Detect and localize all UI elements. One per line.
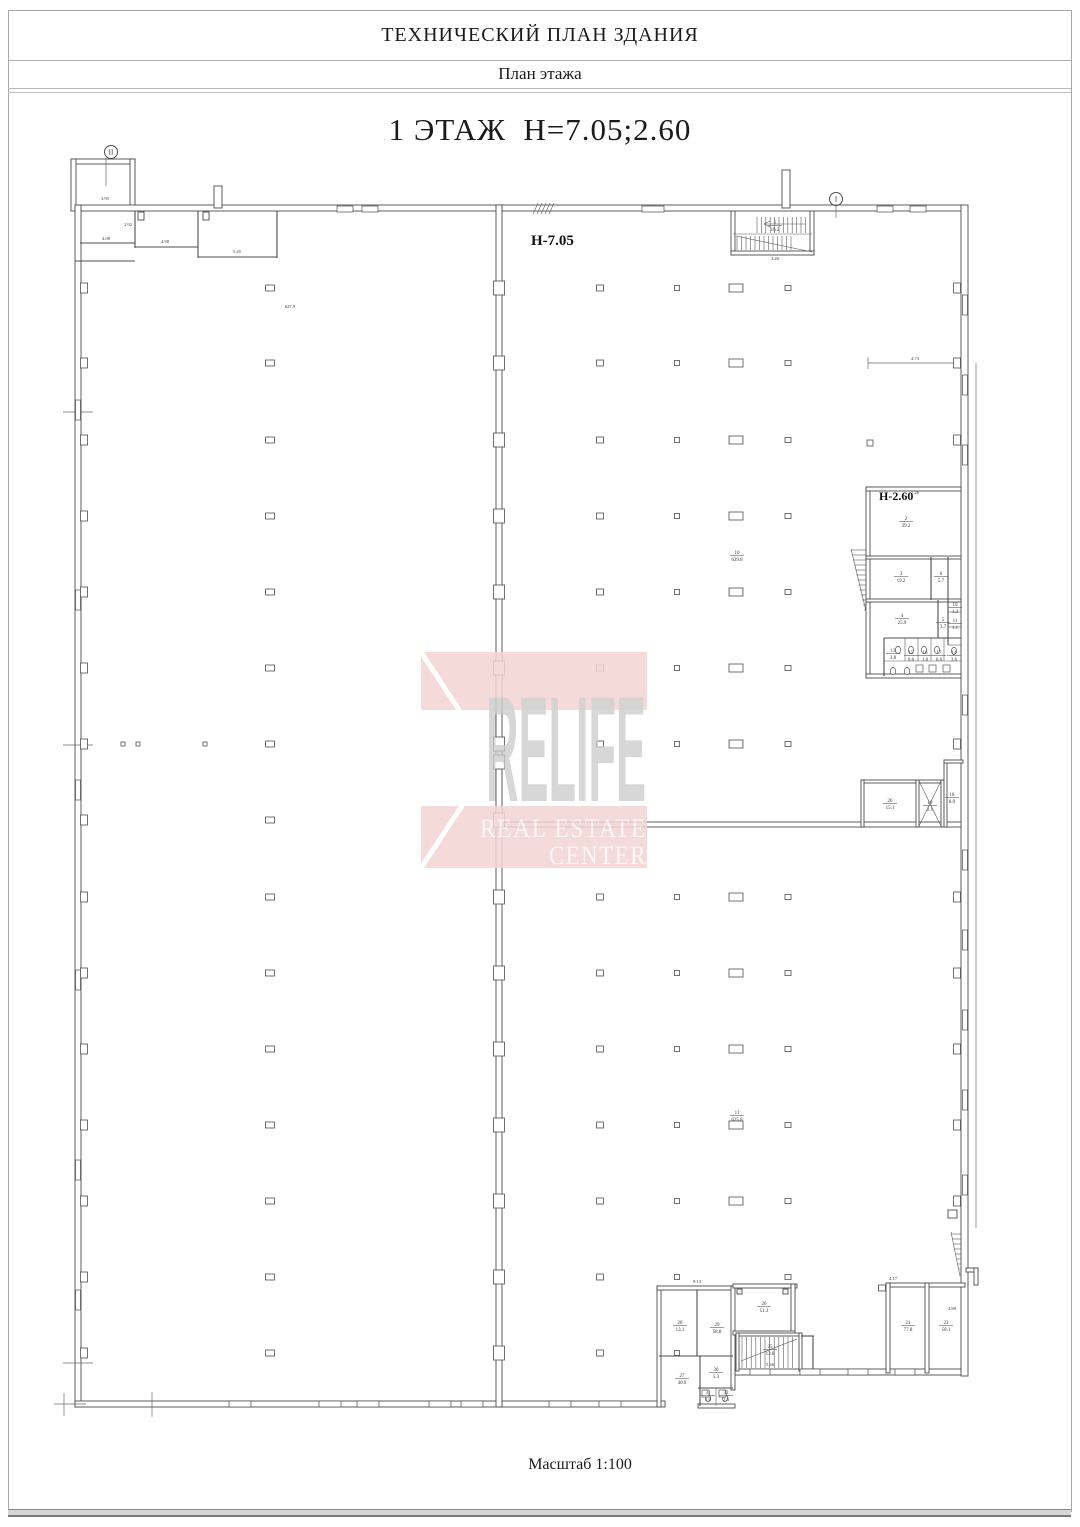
svg-text:23: 23 <box>944 1321 950 1326</box>
svg-text:11: 11 <box>953 619 958 624</box>
column-marker <box>597 1350 604 1356</box>
dimension-label: 4.73 <box>911 356 920 361</box>
dimension-label: 4.17 <box>889 1276 898 1281</box>
column-marker <box>81 1348 88 1358</box>
dimension-label: 4.08 <box>102 236 111 241</box>
column-marker <box>494 281 505 295</box>
column-marker <box>954 739 961 749</box>
column-marker <box>675 1351 680 1356</box>
svg-text:20: 20 <box>888 799 894 804</box>
column-marker <box>494 509 505 523</box>
technical-plan-page: { "header": { "title": "ТЕХНИЧЕСКИЙ ПЛАН… <box>0 0 1080 1527</box>
dimension-label: 2.92 <box>124 222 133 227</box>
column-marker <box>266 1198 275 1204</box>
column-marker <box>597 360 604 366</box>
svg-text:0.6: 0.6 <box>908 658 915 663</box>
column-marker <box>954 358 961 368</box>
svg-text:19.2: 19.2 <box>897 579 906 584</box>
window-marker <box>963 295 968 315</box>
column-marker <box>266 285 275 291</box>
column-marker <box>785 286 791 291</box>
room-label: 2651.3 <box>757 1302 771 1314</box>
column-marker <box>81 1196 88 1206</box>
window-marker <box>229 1401 251 1407</box>
room-label: 2015.1 <box>883 799 897 811</box>
column-marker <box>597 894 604 900</box>
column-marker <box>729 284 743 292</box>
column-marker <box>729 740 743 748</box>
room-label: 11625.8 <box>730 1111 744 1123</box>
svg-text:15.1: 15.1 <box>886 806 895 811</box>
dimension-label: 2.89 <box>948 1306 957 1311</box>
window-marker <box>963 1090 968 1110</box>
svg-text:28: 28 <box>678 1321 684 1326</box>
column-marker <box>81 511 88 521</box>
column-marker <box>494 1118 505 1132</box>
room-label: 2358.1 <box>939 1321 953 1333</box>
dimension-label: 4.90 <box>161 239 170 244</box>
column-marker <box>597 1122 604 1128</box>
svg-text:11: 11 <box>735 1111 740 1116</box>
dimension-label: 627.9 <box>285 304 296 309</box>
column-marker <box>785 438 791 443</box>
column-marker <box>494 585 505 599</box>
window-marker <box>76 590 81 610</box>
sink-fixture <box>929 665 936 672</box>
svg-text:15: 15 <box>909 651 915 656</box>
column-marker <box>729 588 743 596</box>
room-label: 305.3 <box>709 1368 723 1380</box>
column-marker <box>494 356 505 370</box>
room-label: 2958.8 <box>710 1323 724 1335</box>
page-border-bottom <box>8 1509 1071 1517</box>
column-marker <box>675 1275 680 1280</box>
svg-text:32: 32 <box>724 1391 730 1396</box>
column-marker <box>266 1122 275 1128</box>
svg-text:3.6: 3.6 <box>951 658 958 663</box>
svg-text:19: 19 <box>928 801 934 806</box>
svg-text:58.8: 58.8 <box>713 1330 722 1335</box>
window-marker <box>963 695 968 715</box>
window-marker <box>357 1401 379 1407</box>
column-marker <box>597 1046 604 1052</box>
svg-text:639.8: 639.8 <box>731 558 743 563</box>
room-label: 192.1 <box>923 801 937 813</box>
svg-text:25: 25 <box>768 1345 774 1350</box>
dimension-label: 5.46 <box>766 1362 775 1367</box>
column-marker <box>675 742 680 747</box>
window-marker <box>76 780 81 800</box>
column-marker <box>675 438 680 443</box>
column-marker <box>785 742 791 747</box>
column-marker <box>266 817 275 823</box>
column-marker <box>266 1274 275 1280</box>
window-marker <box>963 445 968 465</box>
window-marker <box>963 1175 968 1195</box>
column-marker <box>954 1196 961 1206</box>
column-marker <box>954 283 961 293</box>
column-marker <box>494 890 505 904</box>
column-marker <box>729 436 743 444</box>
svg-text:29: 29 <box>715 1323 721 1328</box>
column-marker <box>729 969 743 977</box>
svg-text:30: 30 <box>714 1368 720 1373</box>
svg-text:27: 27 <box>680 1374 686 1379</box>
column-marker <box>266 360 275 366</box>
room-label: 2740.9 <box>675 1374 689 1386</box>
column-marker <box>785 514 791 519</box>
toilet-fixture <box>904 667 909 674</box>
column-marker <box>729 664 743 672</box>
column-marker <box>954 435 961 445</box>
svg-text:3.7: 3.7 <box>940 625 947 630</box>
column-marker <box>785 1199 791 1204</box>
axis-marker: I <box>830 193 843 206</box>
column-marker <box>785 590 791 595</box>
column-marker <box>81 663 88 673</box>
window-marker <box>429 1401 451 1407</box>
dimension-label: 9.13 <box>693 1279 702 1284</box>
column-marker <box>785 1275 791 1280</box>
relife-watermark: RELIFE REAL ESTATE CENTER <box>421 652 647 870</box>
column-marker <box>729 359 743 367</box>
column-marker <box>266 1350 275 1356</box>
column-marker <box>675 1047 680 1052</box>
column-marker <box>266 741 275 747</box>
svg-text:1.0: 1.0 <box>705 1398 712 1403</box>
column-marker <box>597 1274 604 1280</box>
svg-text:21: 21 <box>906 1321 912 1326</box>
column-marker <box>675 1123 680 1128</box>
column-marker <box>597 513 604 519</box>
svg-text:2.1: 2.1 <box>927 808 934 813</box>
column-marker <box>121 742 125 746</box>
svg-text:5: 5 <box>942 618 945 623</box>
column-marker <box>597 589 604 595</box>
svg-text:13.1: 13.1 <box>676 1328 685 1333</box>
column-marker <box>729 1197 743 1205</box>
svg-text:40.9: 40.9 <box>678 1381 687 1386</box>
column-marker <box>266 1046 275 1052</box>
column-marker <box>954 1120 961 1130</box>
column-marker <box>785 666 791 671</box>
column-marker <box>494 966 505 980</box>
column-marker <box>785 895 791 900</box>
column-marker <box>266 513 275 519</box>
svg-text:II: II <box>109 149 114 157</box>
room-label: 65.7 <box>934 572 948 584</box>
window-marker <box>910 206 926 212</box>
column-marker <box>675 971 680 976</box>
window-marker <box>319 1401 341 1407</box>
svg-text:8.0: 8.0 <box>949 800 956 805</box>
height-label: Н-7.05 <box>531 233 574 249</box>
window-marker <box>76 400 81 420</box>
room-label: 111.1 <box>948 619 962 631</box>
window-marker <box>337 206 353 212</box>
dimension-label: 4.40 <box>771 256 780 261</box>
window-marker <box>963 930 968 950</box>
svg-text:14: 14 <box>952 651 958 656</box>
room-label: 10639.8 <box>730 551 744 563</box>
column-marker <box>675 361 680 366</box>
window-marker <box>461 1401 483 1407</box>
toilet-fixture <box>895 646 900 653</box>
column-marker <box>81 587 88 597</box>
column-marker <box>494 1270 505 1284</box>
svg-text:10: 10 <box>953 603 959 608</box>
column-marker <box>597 437 604 443</box>
svg-text:13.8: 13.8 <box>766 1352 775 1357</box>
column-marker <box>954 968 961 978</box>
column-marker <box>81 1272 88 1282</box>
window-marker <box>800 1369 820 1375</box>
column-marker <box>81 435 88 445</box>
column-marker <box>729 512 743 520</box>
column-marker <box>675 514 680 519</box>
column-marker <box>729 1045 743 1053</box>
column-marker <box>266 894 275 900</box>
column-marker <box>81 283 88 293</box>
window-marker <box>963 1010 968 1030</box>
window-marker <box>599 1401 621 1407</box>
scale-note: Масштаб 1:100 <box>340 1456 820 1474</box>
window-marker <box>750 1369 770 1375</box>
column-marker <box>785 1047 791 1052</box>
svg-text:6: 6 <box>940 572 943 577</box>
column-marker <box>494 1042 505 1056</box>
room-label: 2813.1 <box>673 1321 687 1333</box>
column-marker <box>266 665 275 671</box>
svg-text:5.3: 5.3 <box>713 1375 720 1380</box>
column-marker <box>867 440 873 446</box>
height-label: Н-2.60 <box>879 489 913 503</box>
column-marker <box>597 970 604 976</box>
room-label: 425.9 <box>895 614 909 626</box>
room-label: 319.2 <box>894 572 908 584</box>
svg-text:51.3: 51.3 <box>760 1309 769 1314</box>
column-marker <box>81 892 88 902</box>
room-label: 239.2 <box>899 517 913 529</box>
window-marker <box>76 970 81 990</box>
svg-text:1: 1 <box>774 221 777 226</box>
column-marker <box>203 742 207 746</box>
window-marker <box>895 1369 915 1375</box>
window-marker <box>642 206 664 212</box>
svg-text:1.2: 1.2 <box>952 610 959 615</box>
svg-text:3.8: 3.8 <box>890 656 897 661</box>
column-marker <box>675 666 680 671</box>
svg-text:0.6: 0.6 <box>936 658 943 663</box>
column-marker <box>729 893 743 901</box>
svg-text:58.1: 58.1 <box>942 1328 951 1333</box>
svg-text:16: 16 <box>923 651 929 656</box>
column-marker <box>266 970 275 976</box>
column-marker <box>785 361 791 366</box>
svg-text:1.1: 1.1 <box>952 626 959 631</box>
column-marker <box>81 815 88 825</box>
svg-text:2.6: 2.6 <box>723 1398 730 1403</box>
column-marker <box>81 1044 88 1054</box>
column-marker <box>597 285 604 291</box>
column-marker <box>494 433 505 447</box>
window-marker <box>877 206 893 212</box>
column-marker <box>494 1346 505 1360</box>
svg-text:77.8: 77.8 <box>904 1328 913 1333</box>
svg-text:16.2: 16.2 <box>771 228 780 233</box>
column-marker <box>675 590 680 595</box>
svg-text:I: I <box>835 196 838 204</box>
column-marker <box>675 895 680 900</box>
room-label: 101.2 <box>948 603 962 615</box>
column-marker <box>675 1199 680 1204</box>
watermark-line2: CENTER <box>549 841 647 870</box>
sink-fixture <box>943 665 950 672</box>
column-marker <box>597 1198 604 1204</box>
svg-text:1.0: 1.0 <box>922 658 929 663</box>
window-marker <box>963 375 968 395</box>
column-marker <box>81 1120 88 1130</box>
axis-marker: II <box>105 146 118 159</box>
svg-text:4: 4 <box>901 614 904 619</box>
window-marker <box>362 206 378 212</box>
window-marker <box>963 850 968 870</box>
column-marker <box>954 892 961 902</box>
column-marker <box>81 968 88 978</box>
svg-text:39.2: 39.2 <box>902 524 911 529</box>
svg-text:2: 2 <box>905 517 908 522</box>
column-marker <box>785 971 791 976</box>
svg-text:31: 31 <box>706 1391 712 1396</box>
column-marker <box>785 1123 791 1128</box>
watermark-line1: REAL ESTATE <box>480 814 647 843</box>
room-label: 2177.8 <box>901 1321 915 1333</box>
dimension-label: 3.95 <box>101 196 110 201</box>
window-marker <box>549 1401 571 1407</box>
floor-plan-drawing: 10639.811625.8116.2239.2319.265.7425.953… <box>0 0 1080 1527</box>
dimension-label: 5.45 <box>233 249 242 254</box>
svg-text:17: 17 <box>937 651 943 656</box>
window-marker <box>76 1290 81 1310</box>
column-marker <box>81 358 88 368</box>
svg-text:13: 13 <box>891 649 897 654</box>
window-marker <box>848 1369 868 1375</box>
window-marker <box>76 1160 81 1180</box>
svg-text:10: 10 <box>735 551 741 556</box>
column-marker <box>136 742 140 746</box>
sink-fixture <box>916 665 923 672</box>
toilet-fixture <box>890 667 895 674</box>
svg-text:26: 26 <box>762 1302 768 1307</box>
column-marker <box>879 1285 886 1291</box>
svg-text:25.9: 25.9 <box>898 621 907 626</box>
column-marker <box>494 1194 505 1208</box>
column-marker <box>266 589 275 595</box>
column-marker <box>675 286 680 291</box>
svg-text:5.7: 5.7 <box>938 579 945 584</box>
column-marker <box>954 1044 961 1054</box>
svg-text:625.8: 625.8 <box>731 1118 743 1123</box>
svg-text:3: 3 <box>900 572 903 577</box>
column-marker <box>81 739 88 749</box>
column-marker <box>266 437 275 443</box>
watermark-brand-text: RELIFE <box>486 665 646 833</box>
svg-text:18: 18 <box>950 793 956 798</box>
